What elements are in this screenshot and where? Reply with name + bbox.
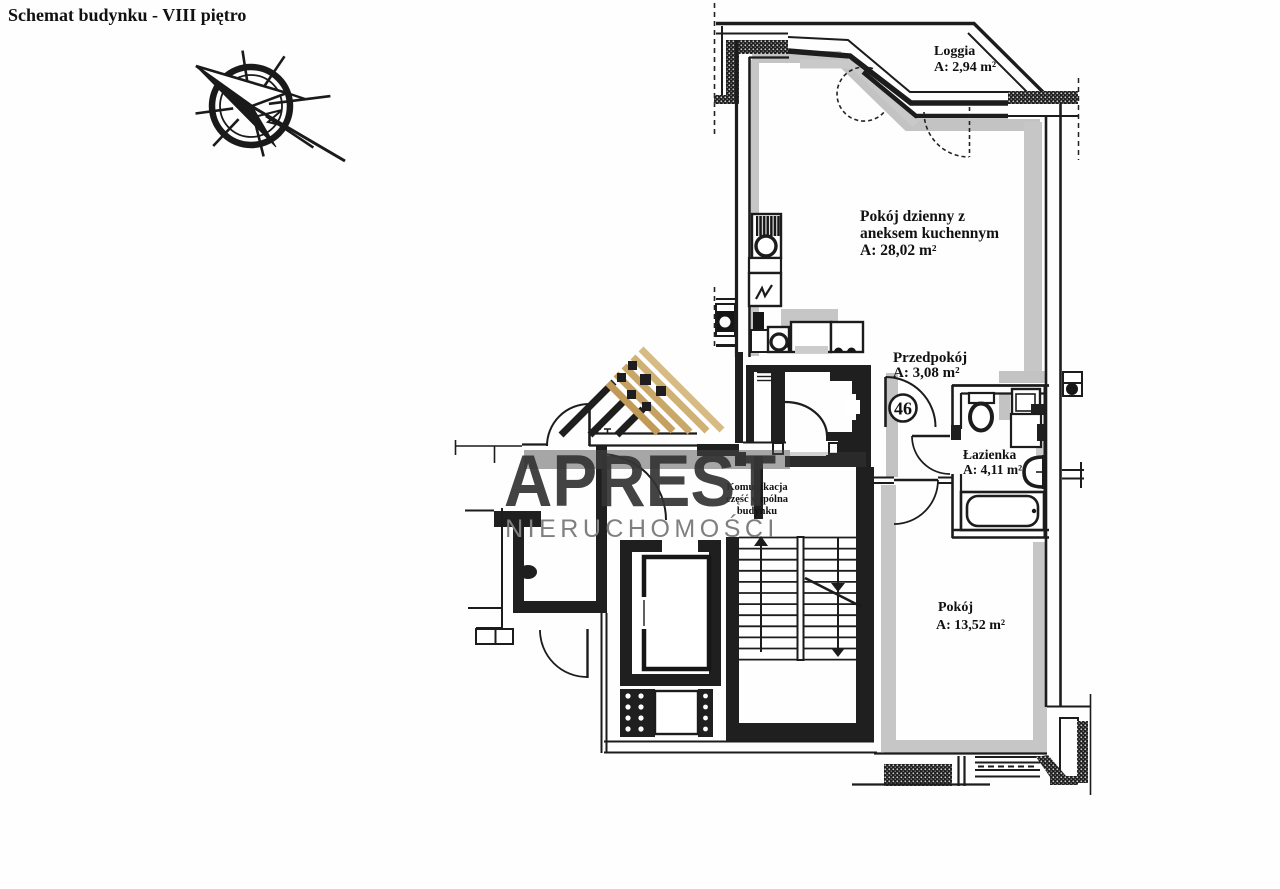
- svg-text:A: 3,08 m²: A: 3,08 m²: [893, 365, 960, 381]
- svg-text:Pokój dzienny z: Pokój dzienny z: [860, 208, 965, 225]
- svg-text:A: 4,11 m²: A: 4,11 m²: [963, 462, 1022, 477]
- svg-text:Loggia: Loggia: [934, 44, 975, 59]
- svg-text:Łazienka: Łazienka: [963, 447, 1017, 462]
- svg-text:46: 46: [894, 399, 912, 419]
- svg-text:Pokój: Pokój: [938, 600, 973, 615]
- svg-text:A: 28,02 m²: A: 28,02 m²: [860, 242, 937, 259]
- svg-text:A: 13,52 m²: A: 13,52 m²: [936, 618, 1005, 633]
- svg-text:Przedpokój: Przedpokój: [893, 350, 967, 366]
- svg-text:aneksem kuchennym: aneksem kuchennym: [860, 225, 999, 242]
- svg-text:A: 2,94 m²: A: 2,94 m²: [934, 60, 996, 75]
- svg-text:Schemat budynku - VIII piętro: Schemat budynku - VIII piętro: [8, 5, 246, 25]
- svg-text:APREST: APREST: [504, 440, 777, 521]
- svg-text:NIERUCHOMOŚCI: NIERUCHOMOŚCI: [505, 513, 779, 543]
